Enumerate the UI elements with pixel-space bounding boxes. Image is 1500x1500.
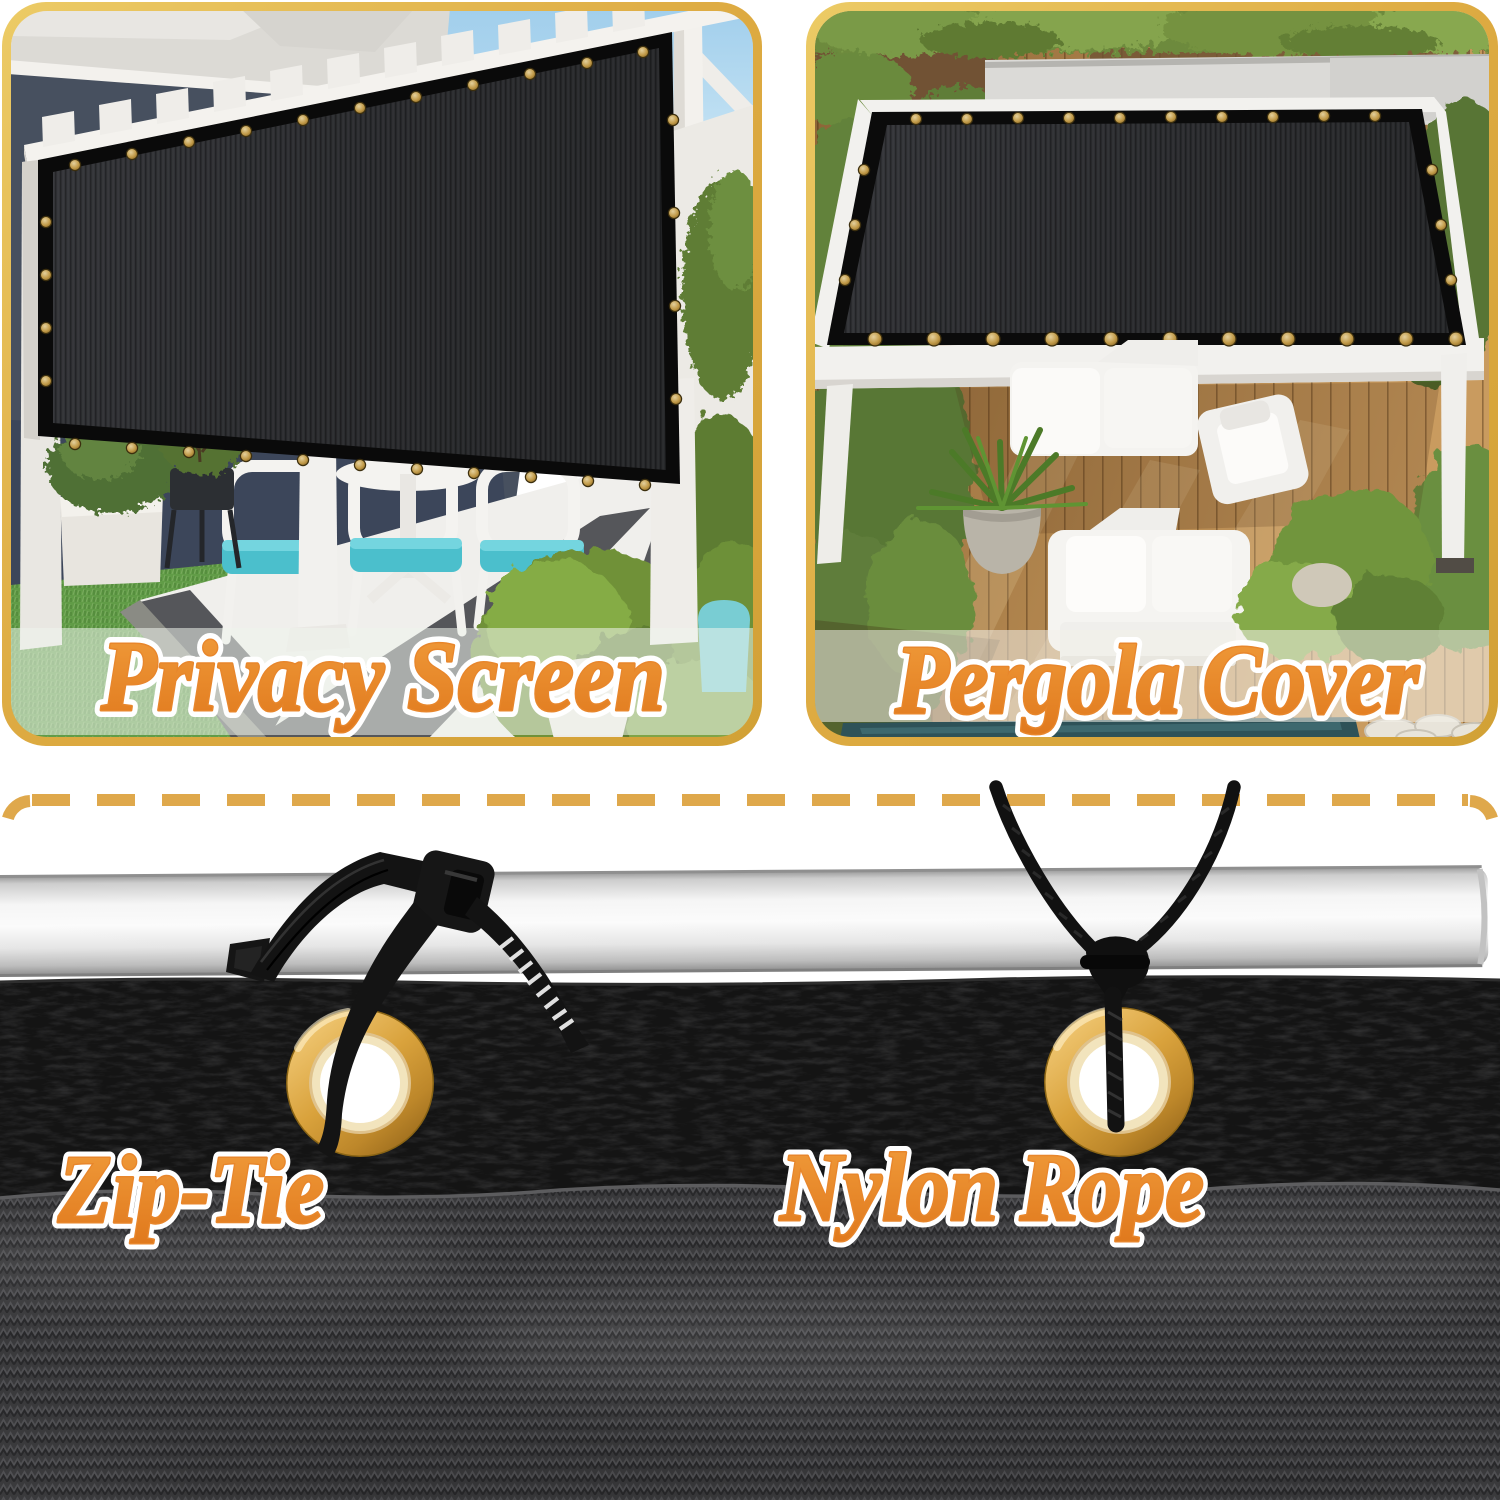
svg-text:Privacy Screen: Privacy Screen — [100, 620, 665, 732]
svg-text:Zip-Tie: Zip-Tie — [57, 1136, 324, 1244]
svg-text:Pergola Cover: Pergola Cover — [894, 624, 1420, 735]
svg-text:Nylon Rope: Nylon Rope — [779, 1134, 1204, 1242]
